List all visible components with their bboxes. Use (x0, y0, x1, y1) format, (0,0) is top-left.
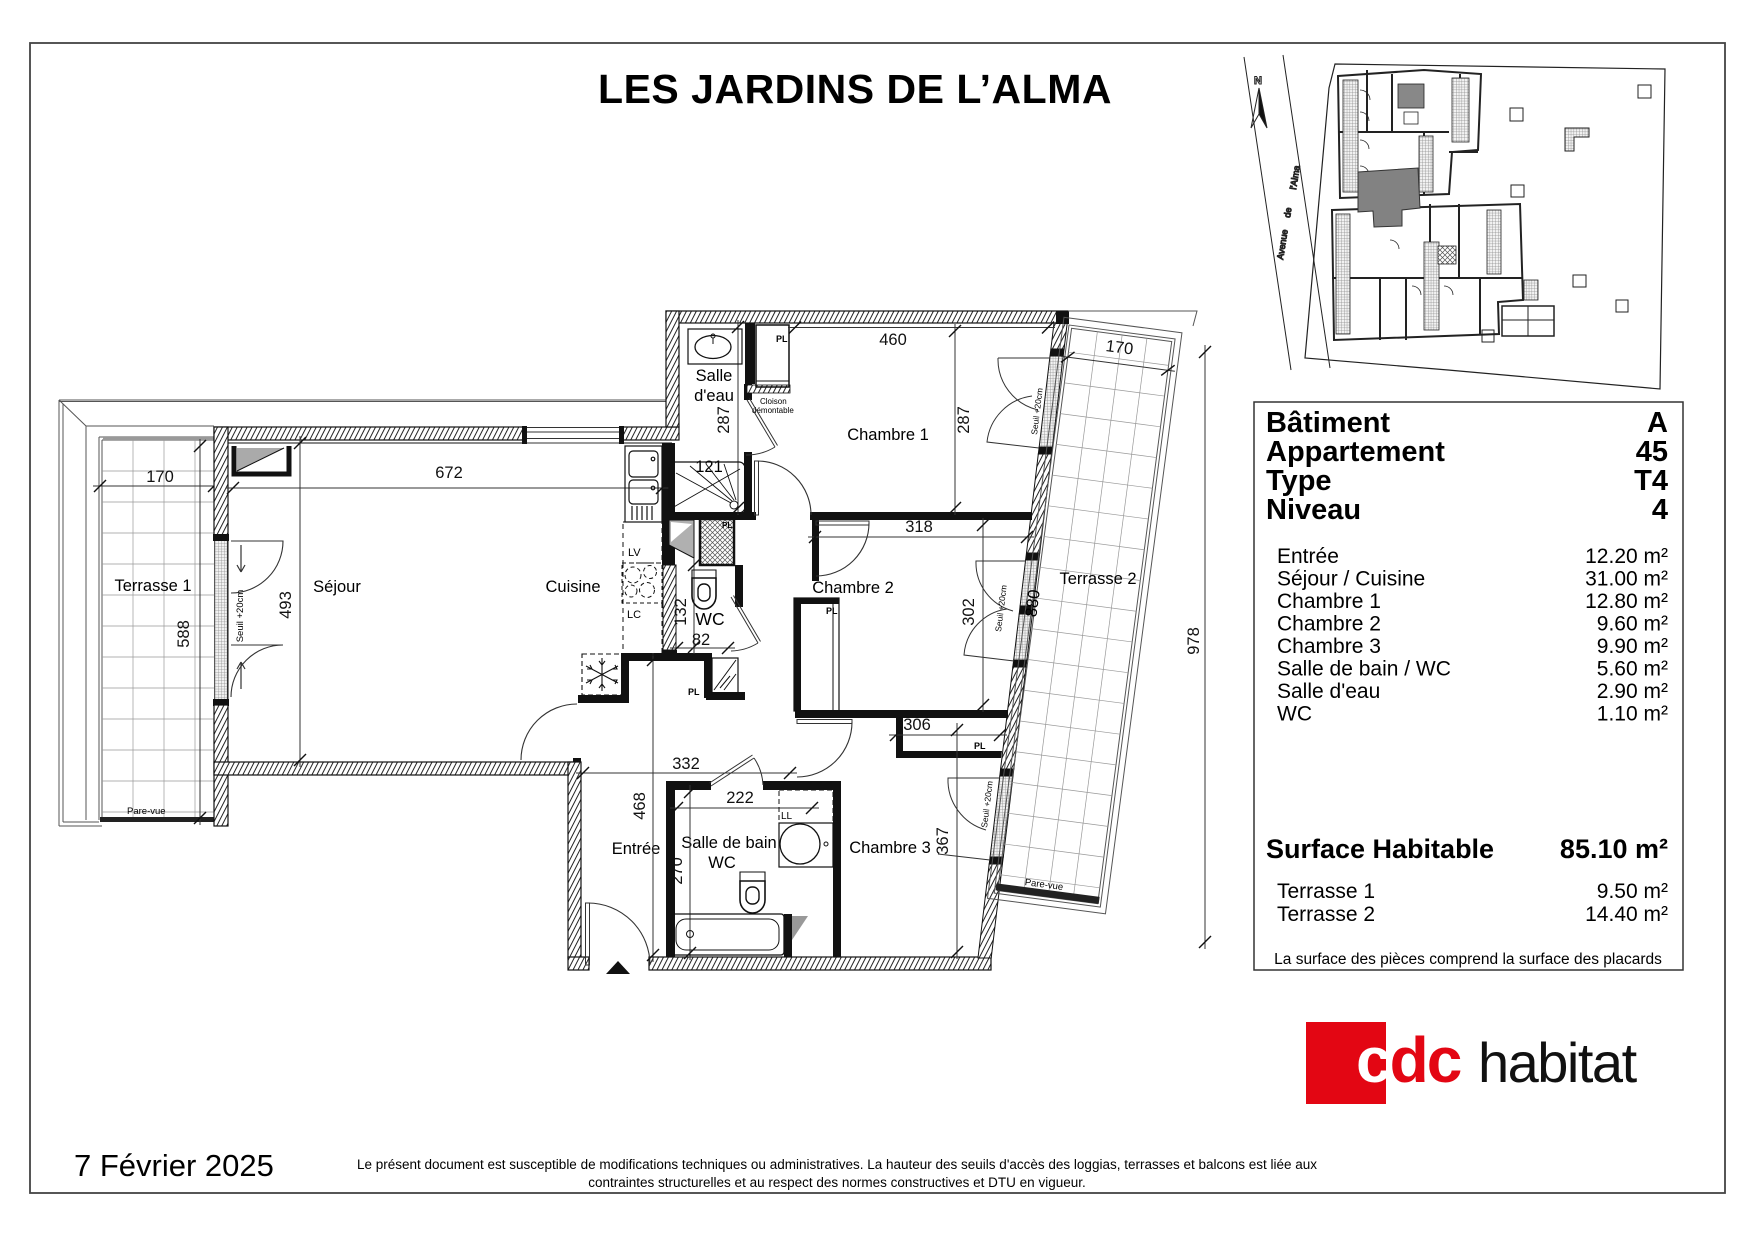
svg-text:170: 170 (1105, 337, 1135, 358)
svg-text:Salle de bain / WC: Salle de bain / WC (1277, 658, 1451, 681)
svg-text:9.50 m²: 9.50 m² (1597, 880, 1668, 903)
svg-text:14.40 m²: 14.40 m² (1585, 903, 1668, 926)
svg-text:WC: WC (708, 854, 736, 872)
svg-text:367: 367 (934, 827, 952, 855)
svg-text:T4: T4 (1634, 465, 1668, 497)
svg-text:Terrasse 1: Terrasse 1 (1277, 880, 1375, 903)
svg-text:332: 332 (672, 755, 700, 773)
svg-text:Seuil +20cm: Seuil +20cm (235, 590, 246, 643)
svg-text:12.20 m²: 12.20 m² (1585, 545, 1668, 568)
svg-text:cdc: cdc (1356, 1024, 1461, 1096)
svg-text:Séjour: Séjour (313, 578, 361, 596)
svg-text:978: 978 (1185, 627, 1203, 655)
svg-text:170: 170 (146, 468, 174, 486)
svg-text:2.90 m²: 2.90 m² (1597, 680, 1668, 703)
svg-text:132: 132 (672, 598, 690, 626)
svg-text:85.10 m²: 85.10 m² (1560, 834, 1668, 864)
svg-text:270: 270 (668, 857, 686, 885)
svg-text:9.90 m²: 9.90 m² (1597, 635, 1668, 658)
svg-text:306: 306 (903, 716, 931, 734)
svg-text:318: 318 (905, 518, 933, 536)
svg-text:5.60 m²: 5.60 m² (1597, 658, 1668, 681)
svg-text:880: 880 (1022, 589, 1043, 619)
svg-text:d'eau: d'eau (694, 387, 734, 405)
svg-text:Chambre 3: Chambre 3 (1277, 635, 1381, 658)
svg-text:Terrasse 2: Terrasse 2 (1059, 570, 1136, 588)
svg-text:Le présent document est suscep: Le présent document est susceptible de m… (357, 1157, 1317, 1172)
svg-text:7 Février 2025: 7 Février 2025 (74, 1148, 274, 1183)
svg-text:Pare-vue: Pare-vue (127, 806, 166, 817)
svg-text:LL: LL (781, 811, 793, 822)
svg-text:493: 493 (277, 591, 295, 619)
svg-text:LV: LV (628, 547, 641, 559)
svg-text:1.10 m²: 1.10 m² (1597, 703, 1668, 726)
svg-text:Chambre 2: Chambre 2 (812, 579, 894, 597)
svg-text:222: 222 (726, 789, 754, 807)
svg-text:PL: PL (826, 606, 838, 616)
svg-text:Surface Habitable: Surface Habitable (1266, 834, 1494, 864)
svg-text:9.60 m²: 9.60 m² (1597, 613, 1668, 636)
svg-text:12.80 m²: 12.80 m² (1585, 590, 1668, 613)
svg-text:287: 287 (715, 406, 733, 434)
svg-text:PL: PL (776, 334, 788, 344)
svg-text:588: 588 (175, 620, 193, 648)
svg-text:302: 302 (960, 598, 978, 626)
svg-text:4: 4 (1652, 494, 1668, 526)
svg-text:LC: LC (627, 609, 641, 621)
svg-text:Salle de bain: Salle de bain (681, 834, 776, 852)
svg-text:Salle: Salle (696, 367, 733, 385)
svg-text:La surface des pièces comprend: La surface des pièces comprend la surfac… (1274, 951, 1662, 968)
svg-text:Salle d'eau: Salle d'eau (1277, 680, 1380, 703)
svg-text:PL: PL (722, 521, 732, 530)
svg-text:82: 82 (692, 631, 710, 649)
svg-text:287: 287 (955, 406, 973, 434)
svg-text:Niveau: Niveau (1266, 494, 1361, 526)
svg-text:WC: WC (695, 609, 724, 629)
svg-text:LES JARDINS DE L’ALMA: LES JARDINS DE L’ALMA (598, 66, 1112, 112)
svg-text:672: 672 (435, 464, 463, 482)
svg-text:WC: WC (1277, 703, 1312, 726)
svg-text:Chambre 3: Chambre 3 (849, 839, 931, 857)
svg-text:A: A (1647, 407, 1668, 439)
svg-text:N: N (1254, 75, 1262, 87)
svg-text:Terrasse 1: Terrasse 1 (114, 577, 191, 595)
svg-text:Séjour / Cuisine: Séjour / Cuisine (1277, 568, 1425, 591)
svg-text:contraintes structurelles et a: contraintes structurelles et au respect … (588, 1175, 1085, 1190)
svg-text:Cloison: Cloison (760, 397, 787, 406)
svg-text:Appartement: Appartement (1266, 436, 1445, 468)
svg-text:Cuisine: Cuisine (545, 578, 600, 596)
svg-text:460: 460 (879, 331, 907, 349)
svg-text:PL: PL (974, 741, 986, 751)
svg-text:31.00 m²: 31.00 m² (1585, 568, 1668, 591)
svg-text:Chambre 2: Chambre 2 (1277, 613, 1381, 636)
svg-text:PL: PL (688, 687, 700, 697)
svg-text:Type: Type (1266, 465, 1332, 497)
svg-text:Terrasse 2: Terrasse 2 (1277, 903, 1375, 926)
svg-text:de: de (1282, 207, 1293, 218)
svg-text:Chambre 1: Chambre 1 (847, 426, 929, 444)
svg-text:45: 45 (1636, 436, 1668, 468)
svg-text:habitat: habitat (1478, 1031, 1638, 1094)
svg-text:Bâtiment: Bâtiment (1266, 407, 1390, 439)
svg-text:Entrée: Entrée (1277, 545, 1339, 568)
svg-text:468: 468 (631, 792, 649, 820)
svg-text:Chambre 1: Chambre 1 (1277, 590, 1381, 613)
